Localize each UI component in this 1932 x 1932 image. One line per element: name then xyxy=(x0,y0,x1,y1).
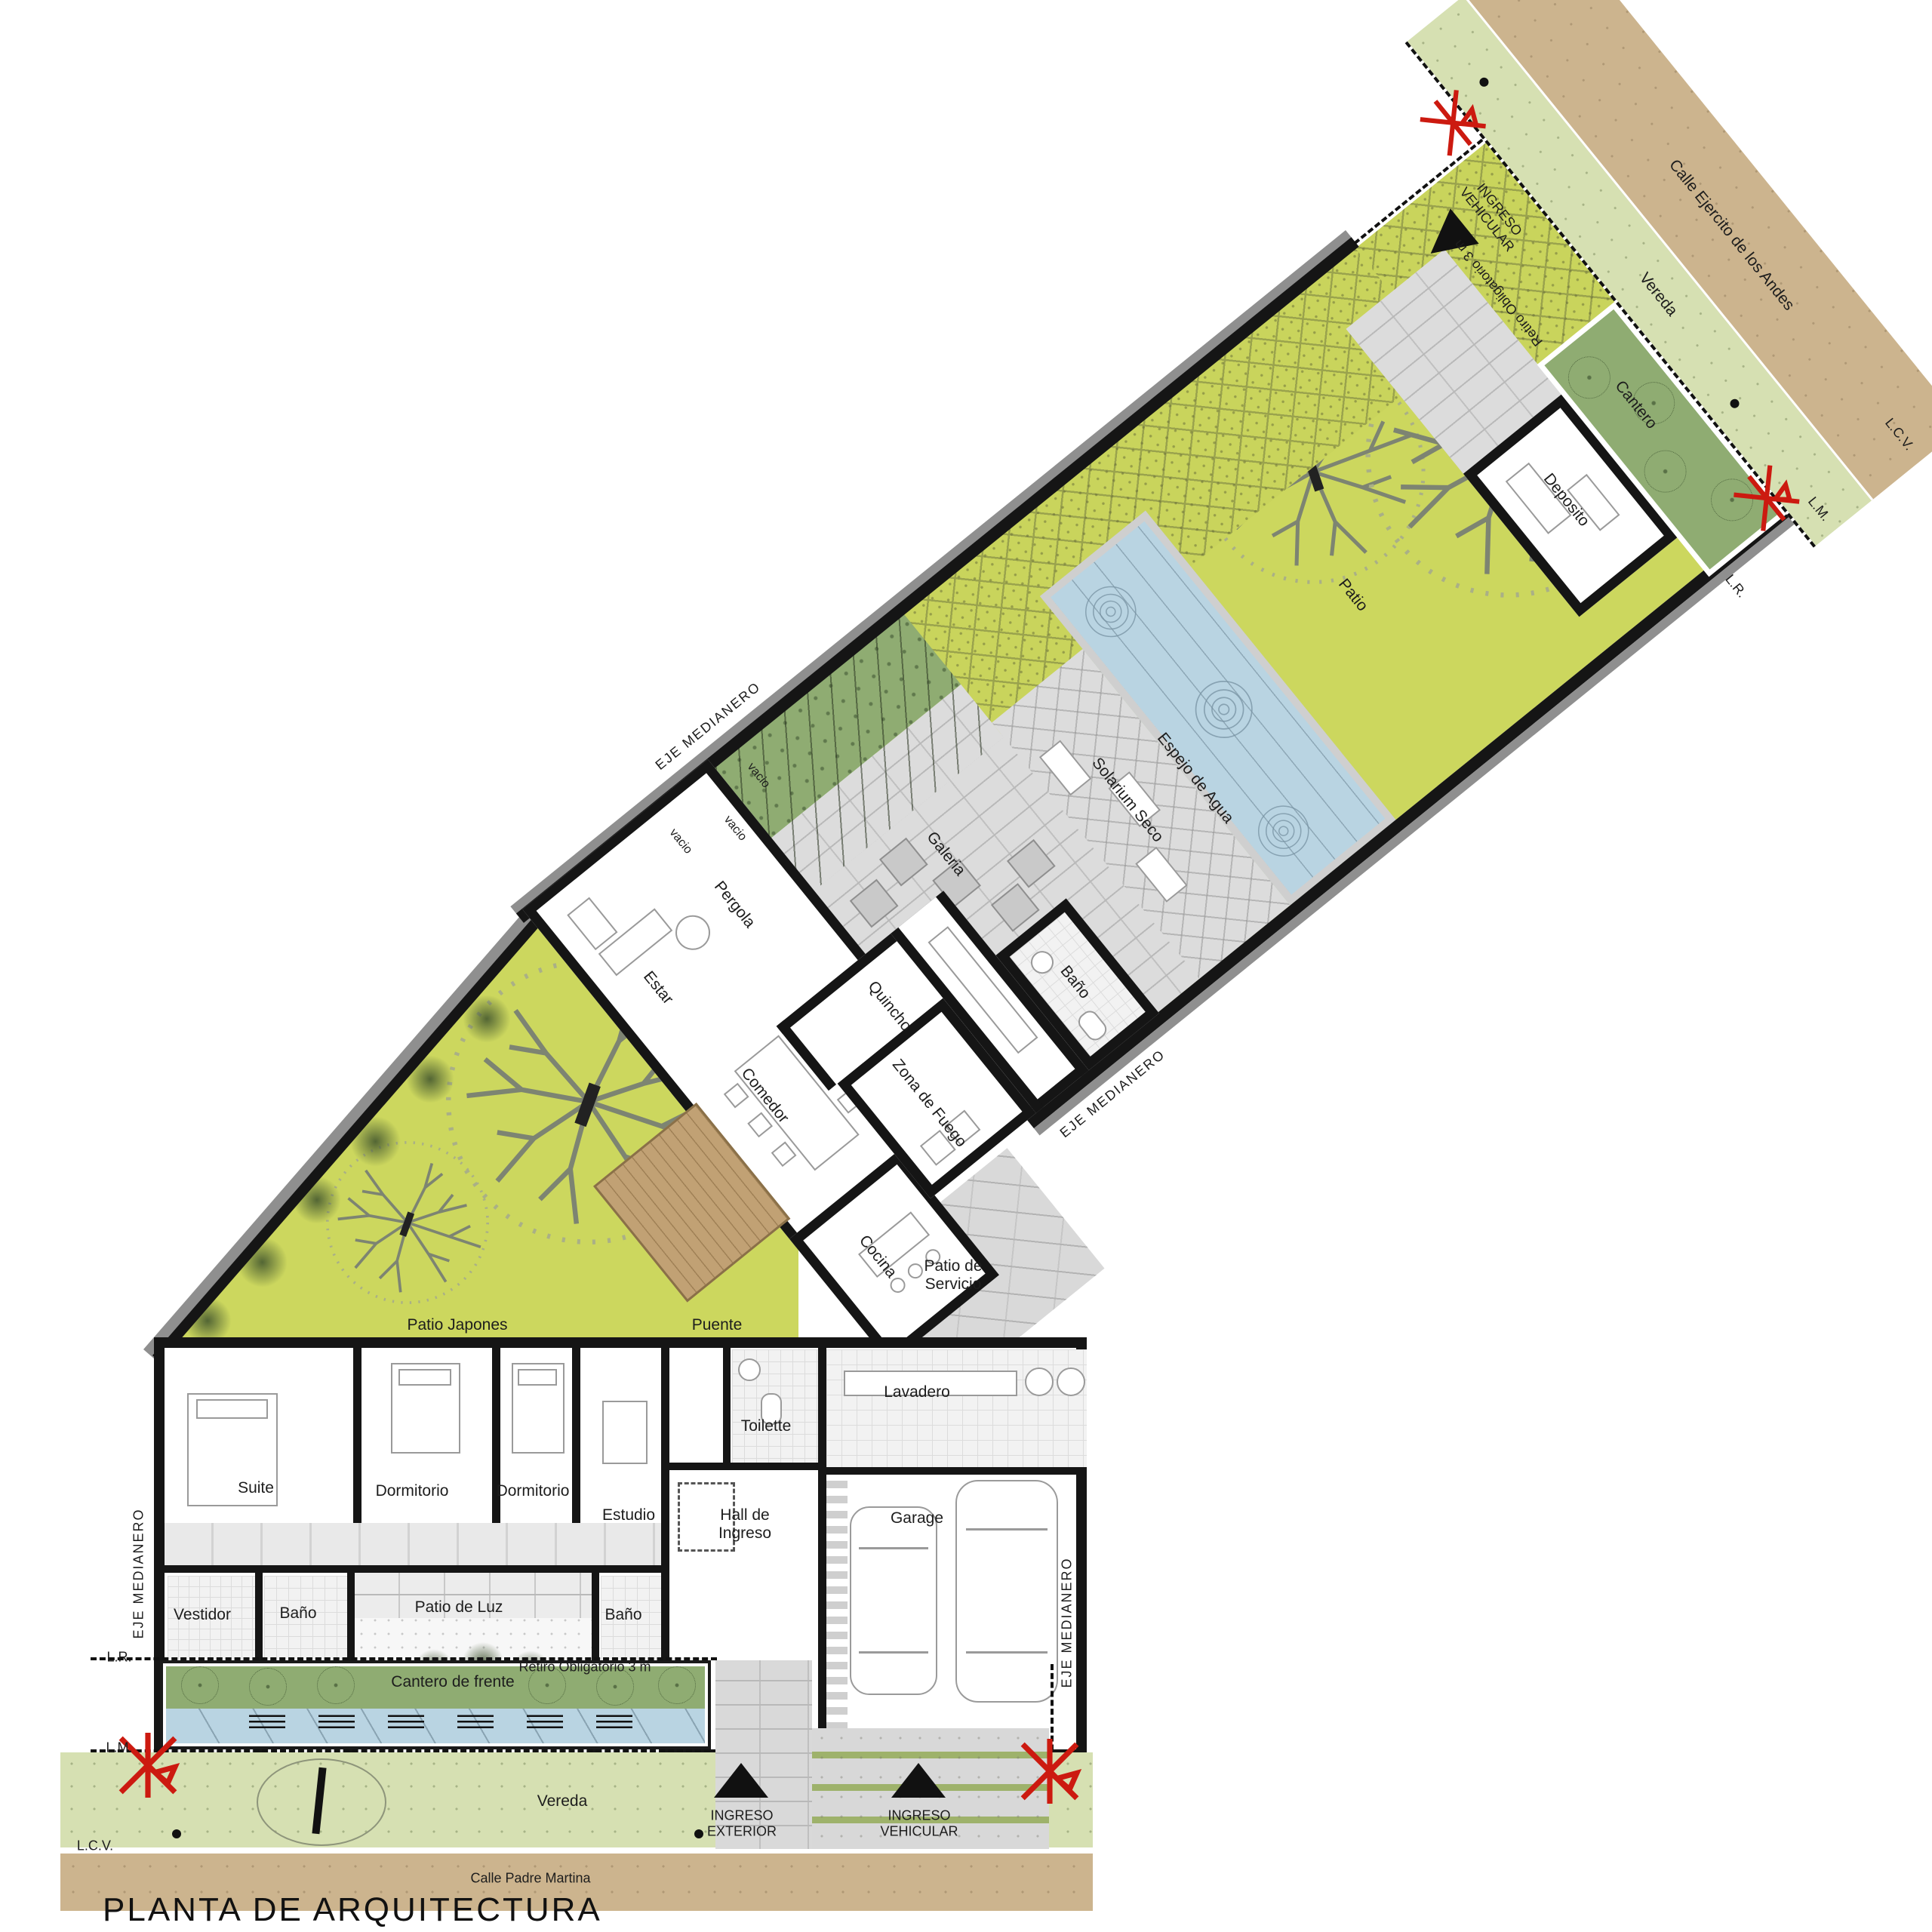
washer-icon xyxy=(1025,1367,1054,1396)
sofa-icon xyxy=(567,897,617,951)
plant-icon xyxy=(658,1666,696,1704)
bed-icon xyxy=(391,1363,460,1454)
label-line: INGRESO xyxy=(710,1807,773,1823)
room-label-estudio: Estudio xyxy=(602,1506,655,1524)
wall xyxy=(818,1348,826,1770)
marker-dot xyxy=(694,1829,703,1838)
drain-icon xyxy=(388,1715,424,1728)
room-label-toilette: Toilette xyxy=(741,1417,792,1435)
pillow-icon xyxy=(398,1369,451,1386)
retiro-south-label: Retiro Obligatorio 3 m xyxy=(518,1660,651,1675)
rotated-wing: INGRESO VEHICULAR Estar Comedor Cocina Z… xyxy=(537,0,1932,1275)
car-icon xyxy=(850,1506,937,1695)
label-line: EXTERIOR xyxy=(707,1823,777,1838)
room-label-lavadero: Lavadero xyxy=(884,1383,950,1401)
ingreso-exterior-arrow-icon xyxy=(714,1763,768,1798)
plant-icon xyxy=(317,1666,355,1704)
page-title: PLANTA DE ARQUITECTURA xyxy=(103,1891,602,1929)
wall xyxy=(165,1565,669,1573)
table-icon xyxy=(669,908,718,957)
windshield-line xyxy=(966,1651,1048,1654)
windshield-line xyxy=(859,1547,928,1549)
sidewalk-south-label: Vereda xyxy=(537,1792,588,1810)
marker-dot xyxy=(172,1829,181,1838)
desk-icon xyxy=(602,1401,648,1464)
room-label-hall: Hall de Ingreso xyxy=(718,1506,771,1543)
wall xyxy=(669,1463,826,1470)
toilet-icon xyxy=(1075,1008,1110,1044)
label-line: INGRESO xyxy=(888,1807,950,1823)
drain-icon xyxy=(318,1715,355,1728)
wall xyxy=(723,1348,731,1463)
ingreso-vehicular-arrow-icon xyxy=(891,1763,946,1798)
street-south-label: Calle Padre Martina xyxy=(470,1871,590,1887)
garage-steps xyxy=(826,1476,848,1760)
car-icon xyxy=(955,1480,1058,1703)
room-label-dormitorio-1: Dormitorio xyxy=(376,1482,449,1500)
zone-label-patio-de-luz: Patio de Luz xyxy=(415,1598,503,1617)
room-label-dormitorio-2: Dormitorio xyxy=(497,1482,570,1500)
drain-icon xyxy=(527,1715,563,1728)
windshield-line xyxy=(966,1528,1048,1531)
sofa-icon xyxy=(598,908,673,976)
wall xyxy=(572,1348,580,1523)
sink-icon xyxy=(1026,946,1058,978)
room-label-suite: Suite xyxy=(238,1479,274,1497)
drain-icon xyxy=(249,1715,285,1728)
washer-icon xyxy=(1057,1367,1085,1396)
survey-x-icon xyxy=(1017,1739,1082,1804)
drain-icon xyxy=(457,1715,494,1728)
pillow-icon xyxy=(518,1369,557,1386)
pillow-icon xyxy=(196,1399,268,1419)
ingreso-vehicular-south-label: INGRESO VEHICULAR xyxy=(880,1807,958,1838)
label-line: Hall de xyxy=(720,1506,769,1524)
label-line: VEHICULAR xyxy=(880,1823,958,1838)
windshield-line xyxy=(859,1651,928,1654)
drain-icon xyxy=(596,1715,632,1728)
lot-label-lm-south: L.M. xyxy=(106,1740,132,1756)
zone-label-patio-servicio: Patio de Servicio xyxy=(924,1257,982,1294)
label-line: Ingreso xyxy=(718,1524,771,1542)
lot-label-lr-south: L.R. xyxy=(106,1650,131,1666)
eje-medianero-east-label: EJE MEDIANERO xyxy=(1060,1557,1075,1687)
zone-label-patio-japones: Patio Japones xyxy=(407,1316,507,1334)
lavadero-floor xyxy=(826,1349,1087,1467)
lot-label-lcv-south: L.C.V. xyxy=(77,1838,113,1854)
room-label-bano-2: Baño xyxy=(605,1606,641,1624)
drain-symbols xyxy=(249,1715,632,1728)
plant-icon xyxy=(249,1668,287,1706)
corridor-floor xyxy=(165,1523,669,1565)
label-line: Servicio xyxy=(925,1275,982,1293)
wall xyxy=(353,1348,361,1523)
chair-icon xyxy=(771,1141,797,1167)
stool-icon xyxy=(905,1260,926,1281)
ingreso-exterior-label: INGRESO EXTERIOR xyxy=(707,1807,777,1838)
label-line: Patio de xyxy=(924,1257,982,1275)
room-label-garage: Garage xyxy=(891,1509,943,1527)
plant-icon xyxy=(181,1666,219,1704)
room-label-bano-1: Baño xyxy=(279,1604,316,1623)
bed-icon xyxy=(512,1363,565,1454)
sink-icon xyxy=(738,1358,761,1381)
zone-label-cantero-frente: Cantero de frente xyxy=(391,1673,514,1691)
floor-plan-canvas: INGRESO VEHICULAR Estar Comedor Cocina Z… xyxy=(0,0,1932,1932)
wall xyxy=(826,1467,1087,1475)
eje-medianero-west-label: EJE MEDIANERO xyxy=(131,1508,147,1638)
zone-label-puente: Puente xyxy=(692,1316,743,1334)
room-label-vestidor: Vestidor xyxy=(174,1606,231,1624)
